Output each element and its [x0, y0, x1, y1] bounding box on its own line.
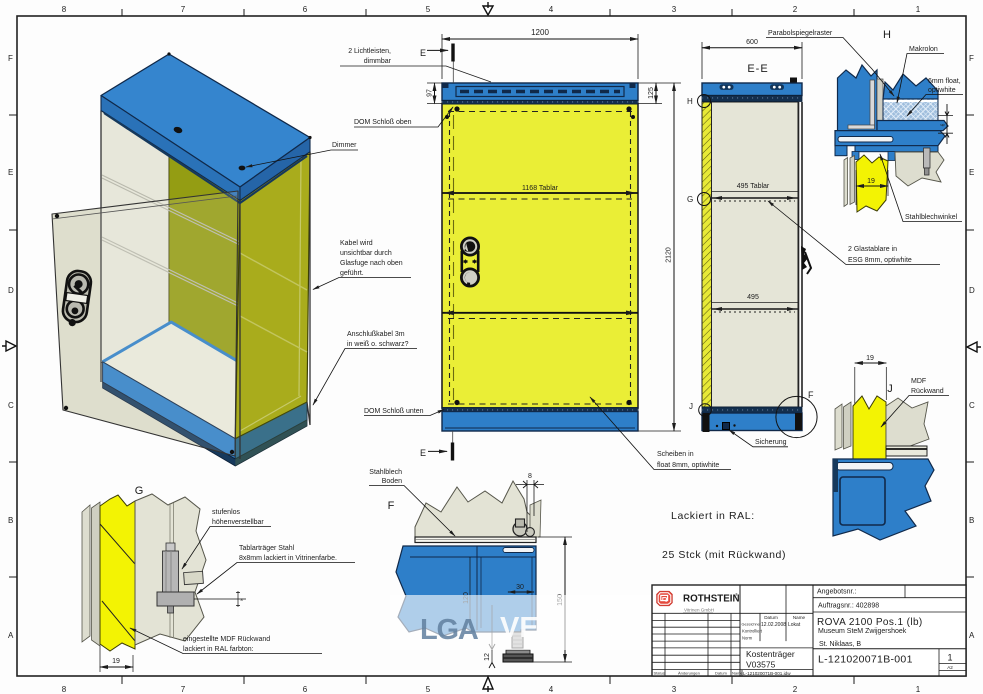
svg-text:600: 600: [746, 39, 758, 46]
svg-text:Lackiert in RAL:: Lackiert in RAL:: [671, 510, 755, 522]
svg-text:optiwhite: optiwhite: [928, 87, 956, 94]
svg-text:6: 6: [941, 123, 947, 126]
svg-text:Sicherung: Sicherung: [755, 439, 787, 446]
svg-text:D: D: [8, 286, 14, 295]
svg-text:Museum SteM Zwijgershoek: Museum SteM Zwijgershoek: [818, 628, 907, 635]
svg-text:Datum: Datum: [764, 615, 778, 620]
svg-text:Angebotsnr.:: Angebotsnr.:: [817, 589, 856, 596]
svg-text:Scheiben in: Scheiben in: [657, 451, 694, 458]
svg-text:A2: A2: [947, 665, 953, 670]
svg-text:D: D: [969, 286, 975, 295]
svg-text:19: 19: [867, 178, 875, 185]
svg-text:1200: 1200: [531, 28, 549, 37]
svg-text:®: ®: [735, 592, 738, 597]
svg-text:B: B: [8, 516, 13, 525]
svg-text:4: 4: [549, 5, 554, 14]
svg-text:Datum: Datum: [715, 671, 727, 676]
svg-text:lackiert in RAL farbton:: lackiert in RAL farbton:: [183, 646, 254, 653]
svg-text:Änderungen: Änderungen: [678, 671, 700, 676]
svg-text:V03575: V03575: [746, 660, 776, 670]
svg-text:1168 Tablar: 1168 Tablar: [522, 185, 559, 192]
svg-text:H: H: [687, 97, 693, 106]
svg-text:Anschlußkabel 3m: Anschlußkabel 3m: [347, 331, 405, 338]
svg-text:6: 6: [303, 5, 308, 14]
svg-text:8x8mm lackiert in Vitrinenfarb: 8x8mm lackiert in Vitrinenfarbe.: [239, 555, 337, 562]
svg-text:ROTHSTEIN: ROTHSTEIN: [683, 594, 740, 605]
svg-text:2: 2: [793, 685, 798, 694]
svg-text:E: E: [420, 48, 426, 58]
svg-text:geführt.: geführt.: [340, 270, 364, 277]
svg-text:Norm: Norm: [742, 635, 753, 640]
svg-text:6: 6: [303, 685, 308, 694]
svg-text:VEILING: VEILING: [500, 612, 616, 644]
svg-text:C: C: [8, 401, 14, 410]
svg-text:8: 8: [62, 685, 67, 694]
svg-text:in weiß o. schwarz?: in weiß o. schwarz?: [347, 341, 409, 348]
svg-text:Auftragsnr.: 402898: Auftragsnr.: 402898: [818, 603, 879, 610]
svg-text:stufenlos: stufenlos: [212, 509, 241, 516]
svg-text:Makrolon: Makrolon: [909, 46, 938, 53]
svg-text:E: E: [8, 168, 13, 177]
svg-text:25 Stck (mit Rückwand): 25 Stck (mit Rückwand): [662, 549, 786, 561]
svg-text:DOM Schloß oben: DOM Schloß oben: [354, 119, 412, 126]
svg-text:19: 19: [866, 355, 874, 362]
svg-text:Gezeichnet: Gezeichnet: [742, 623, 762, 627]
svg-text:F: F: [388, 500, 395, 512]
svg-text:St. Niklaas, B: St. Niklaas, B: [819, 641, 861, 648]
svg-text:Vitrinen GmbH: Vitrinen GmbH: [684, 608, 714, 613]
svg-text:1: 1: [947, 653, 952, 663]
svg-text:3: 3: [672, 685, 677, 694]
svg-text:C: C: [969, 401, 975, 410]
svg-text:G: G: [135, 485, 144, 497]
svg-text:12: 12: [484, 653, 491, 661]
svg-text:G: G: [687, 195, 693, 204]
svg-text:Stahlblechwinkel: Stahlblechwinkel: [905, 214, 958, 221]
svg-text:float 8mm, optiwhite: float 8mm, optiwhite: [657, 462, 719, 469]
svg-text:4: 4: [549, 685, 554, 694]
svg-text:7: 7: [181, 685, 186, 694]
svg-text:495 Tablar: 495 Tablar: [737, 183, 770, 190]
svg-text:Kabel wird: Kabel wird: [340, 240, 373, 247]
svg-text:495: 495: [747, 294, 759, 301]
svg-text:Dimmer: Dimmer: [332, 142, 357, 149]
svg-text:2 Lichtleisten,: 2 Lichtleisten,: [348, 48, 391, 55]
svg-text:Glasfuge nach oben: Glasfuge nach oben: [340, 260, 403, 267]
svg-text:höhenverstellbar: höhenverstellbar: [212, 519, 264, 526]
svg-text:J: J: [689, 402, 693, 411]
svg-text:3: 3: [672, 5, 677, 14]
svg-text:MDF: MDF: [911, 378, 926, 385]
svg-text:DOM Schloß unten: DOM Schloß unten: [364, 408, 424, 415]
svg-text:F: F: [969, 54, 974, 63]
svg-text:L-121020071B-001: L-121020071B-001: [818, 654, 913, 666]
svg-text:dimmbar: dimmbar: [364, 58, 392, 65]
svg-text:eingestellte MDF Rückwand: eingestellte MDF Rückwand: [183, 636, 270, 643]
svg-text:ESG 8mm, optiwhite: ESG 8mm, optiwhite: [848, 257, 912, 264]
svg-text:Rückwand: Rückwand: [911, 388, 944, 395]
svg-text:Kostenträger: Kostenträger: [746, 649, 795, 659]
svg-text:F: F: [8, 54, 13, 63]
svg-text:Parabolspiegelraster: Parabolspiegelraster: [768, 30, 833, 37]
svg-text:Kontrolliert: Kontrolliert: [742, 629, 763, 634]
svg-text:12.02.2008: 12.02.2008: [761, 622, 786, 628]
svg-text:ROVA 2100 Pos.1 (lb): ROVA 2100 Pos.1 (lb): [817, 617, 923, 628]
svg-text:Tablarträger Stahl: Tablarträger Stahl: [239, 545, 295, 552]
svg-text:30: 30: [516, 584, 524, 591]
svg-text:7: 7: [181, 5, 186, 14]
svg-text:97: 97: [427, 89, 434, 97]
svg-text:LGA: LGA: [420, 614, 479, 646]
svg-text:5: 5: [426, 5, 431, 14]
svg-text:Status: Status: [654, 671, 665, 676]
svg-text:E: E: [420, 448, 426, 458]
svg-text:F: F: [808, 390, 814, 400]
svg-text:1: 1: [916, 5, 921, 14]
svg-text:Boden: Boden: [382, 478, 402, 485]
svg-text:19: 19: [112, 658, 120, 665]
svg-text:8: 8: [528, 473, 532, 480]
svg-text:125: 125: [648, 87, 655, 99]
svg-text:6mm float,: 6mm float,: [928, 78, 961, 85]
svg-text:unsichtbar durch: unsichtbar durch: [340, 250, 392, 257]
svg-text:L-121020071B-001.idw: L-121020071B-001.idw: [743, 671, 791, 676]
svg-text:2: 2: [793, 5, 798, 14]
svg-text:A: A: [969, 631, 975, 640]
svg-text:2 Glastablare in: 2 Glastablare in: [848, 246, 897, 253]
svg-text:2120: 2120: [666, 247, 673, 263]
svg-text:E: E: [969, 168, 974, 177]
svg-text:B: B: [969, 516, 974, 525]
svg-text:8: 8: [62, 5, 67, 14]
svg-text:1: 1: [916, 685, 921, 694]
svg-text:Stahlblech: Stahlblech: [369, 469, 402, 476]
svg-text:A: A: [8, 631, 14, 640]
svg-text:Name: Name: [793, 615, 806, 620]
svg-text:E-E: E-E: [747, 63, 768, 75]
svg-text:Lokat: Lokat: [788, 622, 801, 628]
svg-text:J: J: [887, 383, 893, 395]
svg-text:H: H: [883, 29, 891, 41]
svg-text:5: 5: [426, 685, 431, 694]
